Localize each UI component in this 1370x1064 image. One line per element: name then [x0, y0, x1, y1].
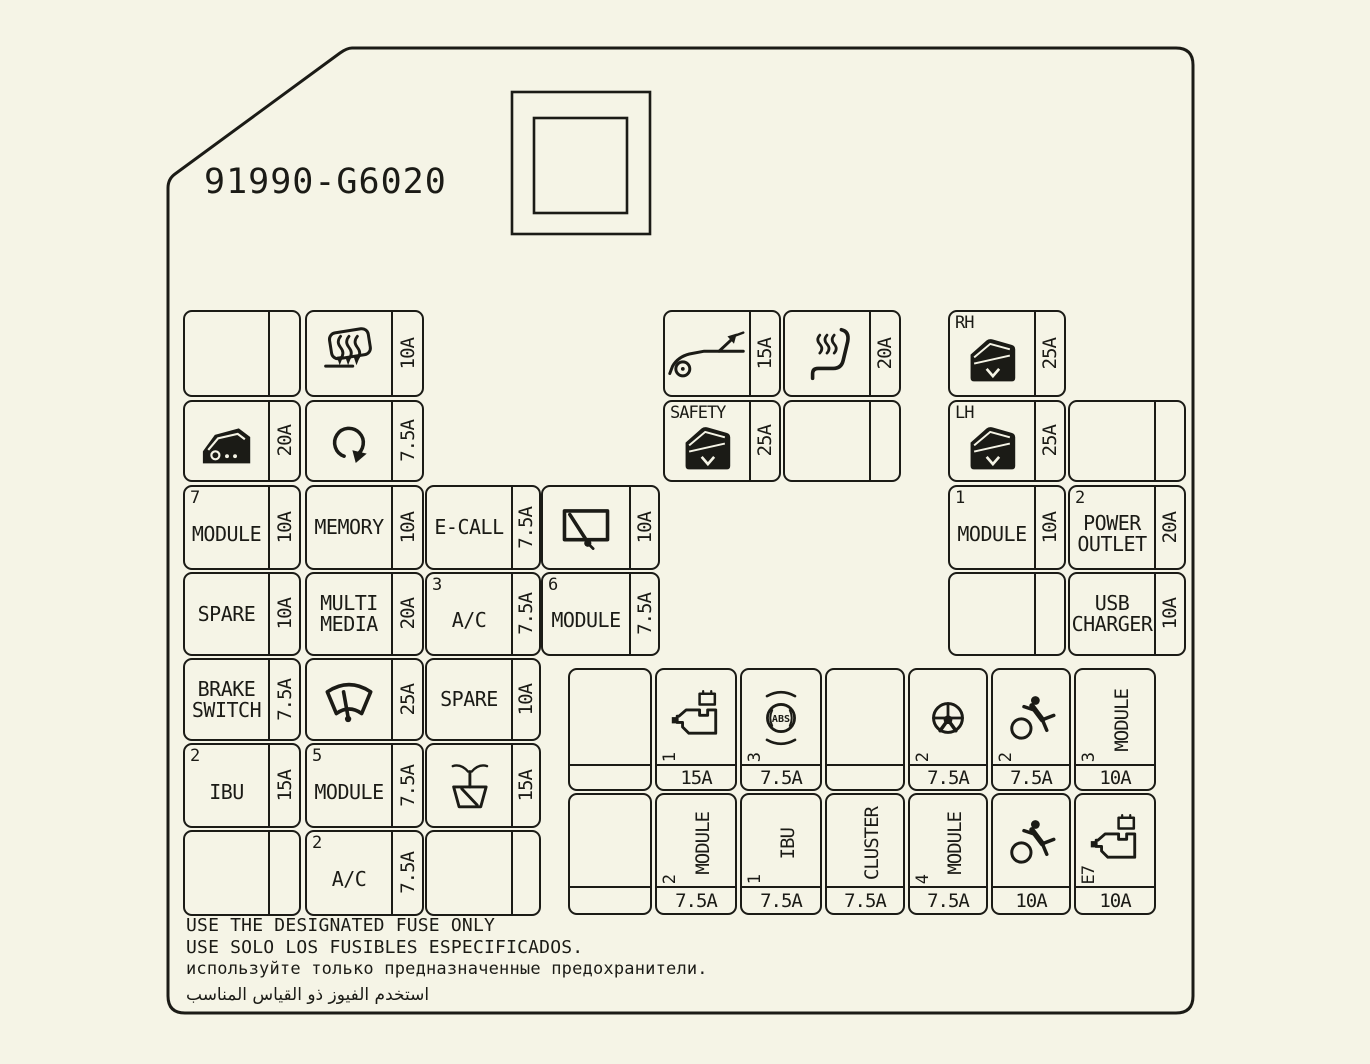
airbag-icon	[1003, 815, 1059, 869]
amp-rating-value: 7.5A	[760, 767, 802, 789]
fuse-cell: 20APOWEROUTLET2	[1068, 485, 1186, 570]
amp-rating-value: 10A	[1039, 512, 1061, 543]
fuse-label: MODULE	[944, 812, 966, 875]
fuse-box-diagram: 91990-G6020 10A 20A 7.5A 10AMODULE710AME…	[0, 0, 1370, 1064]
fuse-cell: 7.5ACLUSTER	[825, 793, 905, 915]
fuse-label: MODULE	[957, 524, 1026, 545]
abs-icon: ABS	[753, 688, 809, 748]
fuse-label: SPARE	[198, 604, 256, 625]
amp-rating: 10A	[993, 886, 1069, 913]
fuse-icon-area: ABS	[742, 670, 820, 766]
fuse-cell-empty	[783, 400, 901, 482]
fuse-label-area	[307, 660, 391, 739]
fuse-index: 3	[745, 753, 765, 762]
fuse-index: 2	[913, 753, 933, 762]
fuse-icon-area	[993, 670, 1069, 766]
amp-rating: 15A	[268, 745, 299, 826]
airbag-icon	[1003, 691, 1059, 745]
fuse-index: 5	[312, 746, 321, 766]
fuse-label-area: MODULE	[1090, 670, 1154, 770]
fuse-index: SAFETY	[670, 403, 725, 423]
fuse-cell: 15AIBU2	[183, 743, 301, 828]
amp-rating-value: 10A	[515, 684, 537, 715]
fuse-cell: 25A	[305, 658, 424, 741]
amp-rating: 20A	[1154, 487, 1184, 568]
fuse-index: 3	[432, 575, 441, 595]
amp-rating-value: 15A	[274, 770, 296, 801]
power-window-icon	[965, 335, 1019, 385]
amp-rating: 10A	[1154, 574, 1184, 654]
amp-rating-value: 7.5A	[515, 593, 537, 635]
fuse-cell: 10AMEMORY	[305, 485, 424, 570]
fuse-label-area	[427, 832, 511, 914]
fuse-cell-empty	[425, 830, 541, 916]
fuse-cell: 7.5AMODULE5	[305, 743, 424, 828]
amp-rating: 10A	[629, 487, 658, 568]
amp-rating	[570, 886, 650, 913]
fuse-label: USB	[1095, 593, 1130, 614]
fuse-cell: 7.5AA/C3	[425, 572, 541, 656]
fuse-label-area: SPARE	[427, 660, 511, 739]
fuse-index: E7	[1079, 866, 1099, 884]
fuse-label-area: BRAKESWITCH	[185, 660, 268, 739]
amp-rating: 15A	[657, 764, 735, 789]
footer-line-arabic: استخدم الفيوز ذو القياس المناسب	[186, 985, 429, 1005]
fuse-index: 1	[745, 875, 765, 884]
amp-rating: 25A	[749, 402, 779, 480]
fuse-cell: 7.5ABRAKESWITCH	[183, 658, 301, 741]
fuse-index: 2	[1075, 488, 1084, 508]
fuse-label-area: USBCHARGER	[1070, 574, 1154, 654]
fuse-label-area	[307, 402, 391, 480]
amp-rating: 25A	[391, 660, 422, 739]
amp-rating: 7.5A	[511, 487, 539, 568]
fuse-cell: 7.5AA/C2	[305, 830, 424, 916]
amp-rating-value: 10A	[634, 512, 656, 543]
fuse-label-area: MEMORY	[307, 487, 391, 568]
amp-rating-value: 15A	[680, 767, 711, 789]
amp-rating: 10A	[268, 487, 299, 568]
washer-icon	[441, 758, 497, 814]
fuse-label: MEDIA	[320, 614, 378, 635]
fuse-cell: 10AMODULE7	[183, 485, 301, 570]
fuse-label: MEMORY	[314, 517, 383, 538]
fuse-cell: 7.5AMODULE6	[541, 572, 660, 656]
amp-rating: 7.5A	[391, 832, 422, 914]
fuse-label: IBU	[209, 782, 244, 803]
steering-icon	[920, 690, 976, 746]
amp-rating: 25A	[1034, 402, 1064, 480]
fuse-cell-empty	[183, 310, 301, 397]
amp-rating-value: 7.5A	[397, 765, 419, 807]
fuse-index: 3	[1079, 753, 1099, 762]
amp-rating: 20A	[869, 312, 899, 395]
fuse-index: 2	[660, 875, 680, 884]
amp-rating: 7.5A	[391, 745, 422, 826]
fuse-index: 7	[190, 488, 199, 508]
amp-rating: 7.5A	[391, 402, 422, 480]
defroster-icon	[318, 326, 380, 382]
fuse-cell: 20A	[183, 400, 301, 482]
fuse-cell: 15A 1	[655, 668, 737, 791]
fuse-index: 2	[190, 746, 199, 766]
amp-rating: 10A	[1076, 886, 1154, 913]
footer-line-spanish: USE SOLO LOS FUSIBLES ESPECIFICADOS.	[186, 937, 583, 958]
amp-rating-value: 7.5A	[760, 890, 802, 912]
amp-rating-value: 10A	[274, 598, 296, 629]
fuse-label-area	[185, 402, 268, 480]
amp-rating-value: 7.5A	[397, 852, 419, 894]
fuse-cell: 7.5A	[305, 400, 424, 482]
amp-rating: 7.5A	[910, 764, 986, 789]
fuse-cell: 10AMODULE1	[948, 485, 1066, 570]
fuse-label: MODULE	[314, 782, 383, 803]
fuse-label-area	[785, 312, 869, 395]
amp-rating: 7.5A	[993, 764, 1069, 789]
fuse-label: A/C	[452, 610, 487, 631]
fuse-cell: 15A	[663, 310, 781, 397]
fuse-label-area	[185, 832, 268, 914]
fuse-cell: 10AMODULE3	[1074, 668, 1156, 791]
fuse-cell-empty	[568, 793, 652, 915]
fuse-label-area: MODULE	[671, 795, 735, 892]
amp-rating: 10A	[511, 660, 539, 739]
amp-rating: 10A	[391, 487, 422, 568]
fuse-index: 1	[660, 753, 680, 762]
fuse-index: LH	[955, 403, 973, 423]
fuse-cell: 7.5AMODULE4	[908, 793, 988, 915]
amp-rating: 25A	[1034, 312, 1064, 395]
fuse-cell: 20A	[783, 310, 901, 397]
amp-rating-value: 10A	[1099, 890, 1130, 912]
fuse-label-area	[1070, 402, 1154, 480]
amp-rating-value: 7.5A	[844, 890, 886, 912]
amp-rating	[268, 312, 299, 395]
fuse-label-area	[307, 312, 391, 395]
amp-rating: 15A	[511, 745, 539, 826]
fuse-cell-empty	[183, 830, 301, 916]
fuse-label-area: CLUSTER	[841, 795, 903, 892]
fuse-label: CHARGER	[1072, 614, 1153, 635]
fuse-label-area	[950, 574, 1034, 654]
amp-rating-value: 7.5A	[515, 507, 537, 549]
loop-arrow-icon	[322, 414, 376, 468]
amp-rating	[1034, 574, 1064, 654]
fuse-icon-area	[993, 795, 1069, 888]
engine-icon	[1089, 814, 1141, 870]
amp-rating-value: 7.5A	[274, 679, 296, 721]
fuse-label-area: SPARE	[185, 574, 268, 654]
fuse-label-area: MODULE	[924, 795, 986, 892]
fuse-cell: 7.5A 2	[908, 668, 988, 791]
heated-seat-icon	[800, 326, 854, 382]
amp-rating-value: 7.5A	[927, 767, 969, 789]
fuse-label-area	[427, 745, 511, 826]
amp-rating-value: 7.5A	[397, 420, 419, 462]
amp-rating-value: 15A	[754, 338, 776, 369]
fuse-cell: 7.5A 2	[991, 668, 1071, 791]
fuse-cell: 15A	[425, 743, 541, 828]
amp-rating	[570, 764, 650, 789]
front-wiper-icon	[320, 672, 378, 728]
amp-rating-value: 15A	[515, 770, 537, 801]
footer-line-english: USE THE DESIGNATED FUSE ONLY	[186, 915, 495, 936]
fuse-cell: 10AUSBCHARGER	[1068, 572, 1186, 656]
amp-rating	[511, 832, 539, 914]
fuse-cell: 10A	[305, 310, 424, 397]
amp-rating-value: 10A	[397, 338, 419, 369]
rear-wiper-icon	[557, 502, 615, 554]
fuse-cell: 10A	[991, 793, 1071, 915]
amp-rating-value: 7.5A	[1010, 767, 1052, 789]
fuse-index: 1	[955, 488, 964, 508]
amp-rating: 7.5A	[511, 574, 539, 654]
amp-rating: 10A	[268, 574, 299, 654]
amp-rating-value: 20A	[1159, 512, 1181, 543]
fuse-cell: 25A LH	[948, 400, 1066, 482]
fuse-cell-empty	[568, 668, 652, 791]
power-window-icon	[680, 423, 734, 473]
fuse-label: MODULE	[692, 812, 714, 875]
amp-rating: 7.5A	[742, 764, 820, 789]
fuse-label: MODULE	[192, 524, 261, 545]
part-number: 91990-G6020	[204, 162, 447, 202]
amp-rating-value: 25A	[1039, 338, 1061, 369]
fuse-label: MULTI	[320, 593, 378, 614]
amp-rating-value: 7.5A	[927, 890, 969, 912]
fuse-label: OUTLET	[1077, 534, 1146, 555]
fuse-label: BRAKE	[198, 679, 256, 700]
fuse-label-area	[665, 312, 749, 395]
amp-rating	[1154, 402, 1184, 480]
fuse-cell: 7.5AE-CALL	[425, 485, 541, 570]
fuse-cell: 7.5AIBU1	[740, 793, 822, 915]
amp-rating-value: 25A	[754, 425, 776, 456]
fuse-index: 2	[312, 833, 321, 853]
fuse-label-area	[185, 312, 268, 395]
fuse-index: RH	[955, 313, 973, 333]
fuse-label-area: E-CALL	[427, 487, 511, 568]
amp-rating: 15A	[749, 312, 779, 395]
fuse-label: SWITCH	[192, 700, 261, 721]
fuse-cell: 20AMULTIMEDIA	[305, 572, 424, 656]
fuse-cell: 25A RH	[948, 310, 1066, 397]
amp-rating-value: 10A	[274, 512, 296, 543]
alignment-square-inner	[534, 118, 627, 213]
amp-rating-value: 20A	[397, 598, 419, 629]
fuse-cell: 10A	[541, 485, 660, 570]
fuse-label: IBU	[777, 828, 799, 859]
fuse-label: MODULE	[551, 610, 620, 631]
fuse-label: A/C	[332, 869, 367, 890]
amp-rating-value: 20A	[274, 425, 296, 456]
amp-rating: 10A	[1034, 487, 1064, 568]
power-window-icon	[965, 423, 1019, 473]
amp-rating-value: 7.5A	[675, 890, 717, 912]
fuse-icon-area	[657, 670, 735, 766]
amp-rating: 20A	[391, 574, 422, 654]
fuse-cell: 25A SAFETY	[663, 400, 781, 482]
fuse-cell: 10A E7	[1074, 793, 1156, 915]
fuse-cell: 10ASPARE	[183, 572, 301, 656]
fuse-label: POWER	[1083, 513, 1141, 534]
amp-rating-value: 10A	[397, 512, 419, 543]
amp-rating: 7.5A	[629, 574, 658, 654]
fuse-label: MODULE	[1111, 689, 1133, 752]
amp-rating-value: 10A	[1015, 890, 1046, 912]
fuse-cell-empty	[948, 572, 1066, 656]
fuse-cell-empty	[1068, 400, 1186, 482]
fuse-index: 6	[548, 575, 557, 595]
fuse-label: CLUSTER	[861, 807, 883, 880]
trunk-open-icon	[667, 326, 747, 382]
fuse-label: E-CALL	[434, 517, 503, 538]
amp-rating: 20A	[268, 402, 299, 480]
fuse-index: 4	[913, 875, 933, 884]
fuse-cell-empty	[825, 668, 905, 791]
fuse-cell: 7.5AMODULE2	[655, 793, 737, 915]
fuse-cell: 7.5A ABS3	[740, 668, 822, 791]
engine-icon	[670, 690, 722, 746]
amp-rating-value: 7.5A	[634, 593, 656, 635]
amp-rating	[869, 402, 899, 480]
svg-text:ABS: ABS	[772, 714, 790, 725]
fuse-label-area	[785, 402, 869, 480]
amp-rating-value: 20A	[874, 338, 896, 369]
amp-rating: 10A	[391, 312, 422, 395]
fuse-index: 2	[996, 753, 1016, 762]
amp-rating	[268, 832, 299, 914]
fuse-label: SPARE	[440, 689, 498, 710]
fuse-label-area: MULTIMEDIA	[307, 574, 391, 654]
fuse-cell: 10ASPARE	[425, 658, 541, 741]
fuse-icon-area	[910, 670, 986, 766]
amp-rating: 7.5A	[268, 660, 299, 739]
amp-rating-value: 25A	[1039, 425, 1061, 456]
amp-rating	[827, 764, 903, 789]
amp-rating-value: 10A	[1159, 598, 1181, 629]
fuse-label-area: IBU	[756, 795, 820, 892]
door-lock-icon	[198, 416, 256, 466]
footer-line-russian: используйте только предназначенные предо…	[186, 959, 708, 979]
fuse-label-area	[543, 487, 629, 568]
amp-rating-value: 25A	[397, 684, 419, 715]
